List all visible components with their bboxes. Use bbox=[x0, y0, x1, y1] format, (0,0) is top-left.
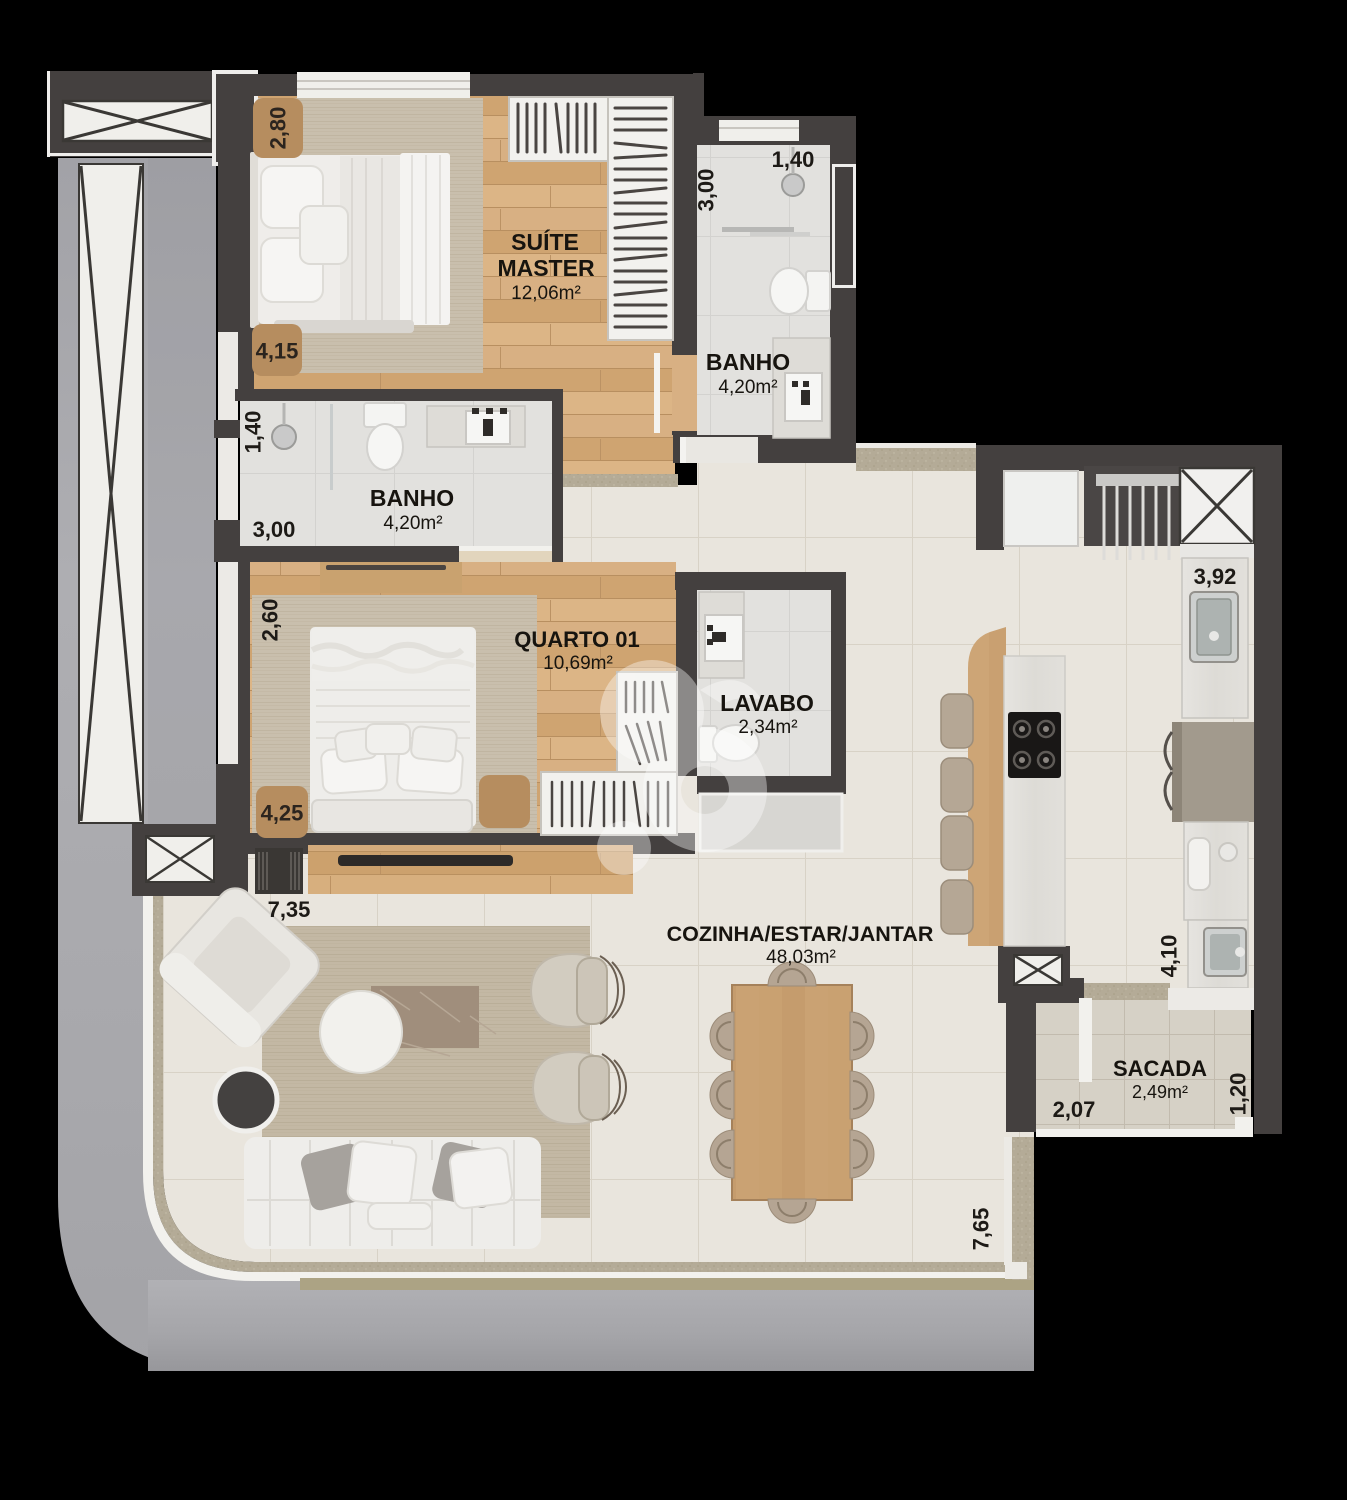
svg-text:QUARTO 01: QUARTO 01 bbox=[514, 627, 640, 652]
svg-text:3,00: 3,00 bbox=[694, 169, 719, 212]
svg-text:SACADA: SACADA bbox=[1113, 1056, 1207, 1081]
svg-text:48,03m²: 48,03m² bbox=[766, 947, 836, 968]
svg-text:2,80: 2,80 bbox=[266, 107, 291, 150]
svg-text:4,10: 4,10 bbox=[1157, 935, 1182, 978]
svg-text:SUÍTE: SUÍTE bbox=[511, 228, 579, 255]
svg-text:BANHO: BANHO bbox=[370, 485, 454, 511]
svg-text:1,40: 1,40 bbox=[772, 147, 815, 172]
svg-text:10,69m²: 10,69m² bbox=[543, 653, 613, 674]
svg-text:7,65: 7,65 bbox=[969, 1208, 994, 1251]
svg-text:7,35: 7,35 bbox=[268, 897, 311, 922]
svg-text:2,07: 2,07 bbox=[1053, 1097, 1096, 1122]
svg-text:4,15: 4,15 bbox=[256, 339, 299, 364]
svg-text:3,00: 3,00 bbox=[253, 517, 296, 542]
svg-text:1,20: 1,20 bbox=[1226, 1073, 1251, 1116]
svg-text:3,92: 3,92 bbox=[1194, 564, 1237, 589]
svg-text:BANHO: BANHO bbox=[706, 349, 790, 375]
svg-text:4,20m²: 4,20m² bbox=[383, 513, 442, 534]
svg-text:MASTER: MASTER bbox=[497, 255, 595, 281]
svg-text:12,06m²: 12,06m² bbox=[511, 283, 581, 304]
svg-text:2,60: 2,60 bbox=[258, 599, 283, 642]
svg-text:COZINHA/ESTAR/JANTAR: COZINHA/ESTAR/JANTAR bbox=[667, 922, 934, 946]
svg-text:2,34m²: 2,34m² bbox=[738, 717, 797, 738]
svg-text:1,40: 1,40 bbox=[241, 411, 266, 454]
svg-text:4,25: 4,25 bbox=[261, 801, 304, 826]
svg-text:LAVABO: LAVABO bbox=[720, 690, 814, 716]
svg-text:2,49m²: 2,49m² bbox=[1132, 1082, 1188, 1102]
svg-text:4,20m²: 4,20m² bbox=[718, 377, 777, 398]
